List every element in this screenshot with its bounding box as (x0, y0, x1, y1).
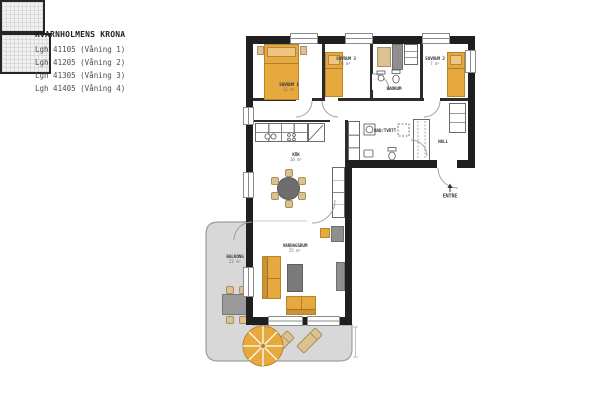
wall (457, 160, 475, 168)
desk (377, 47, 391, 67)
wall (246, 36, 253, 107)
wall (246, 125, 253, 172)
closet (348, 121, 360, 162)
partition-wall (420, 44, 423, 101)
wardrobe (392, 44, 403, 70)
window (307, 316, 340, 326)
window (268, 316, 303, 326)
window (345, 33, 373, 44)
entre-label: ENTRE (420, 194, 480, 200)
partition-wall (338, 98, 424, 101)
bed-single-sovrum3 (325, 52, 343, 97)
wall (246, 198, 253, 267)
kitchen-counter (255, 123, 308, 142)
wall (345, 160, 352, 325)
dining-table (277, 177, 300, 200)
floorplan-page: KVARNHOLMENS KRONA Lgh 41105 (Våning 1) … (0, 0, 600, 400)
nightstand (300, 46, 307, 55)
coffee-table (287, 264, 303, 292)
window (422, 33, 450, 44)
wall (352, 160, 437, 168)
side-table (320, 228, 330, 238)
bathroom (0, 0, 45, 33)
loveseat (286, 296, 316, 315)
partition-wall (440, 98, 468, 101)
window (465, 50, 476, 73)
window (243, 267, 254, 297)
dining-chair (298, 177, 306, 185)
apartment-list-item: Lgh 41205 (Våning 2) (35, 56, 125, 69)
entrance-door-arc (438, 168, 458, 188)
partition-wall (312, 98, 322, 101)
bed-single-sovrum2 (447, 52, 465, 97)
window (243, 172, 254, 198)
hall-wardrobe (413, 119, 430, 161)
dining-chair (298, 192, 306, 200)
sun-lounger (296, 327, 323, 354)
dining-chair (285, 200, 293, 208)
cabinet (404, 44, 418, 65)
tv-bench (336, 262, 345, 291)
nightstand (257, 46, 264, 55)
balcony-chair (226, 286, 234, 294)
window (243, 107, 254, 125)
sun-lounger (268, 330, 295, 357)
entre-arrow-icon (447, 184, 452, 193)
page-title: KVARNHOLMENS KRONA (35, 30, 125, 39)
wall (468, 73, 475, 168)
apartment-list-item: Lgh 41305 (Våning 3) (35, 69, 125, 82)
door-opening (408, 140, 412, 156)
sofa (262, 256, 281, 299)
kitchen-tall-cabinets (332, 167, 345, 218)
wall (340, 317, 352, 325)
wall (246, 317, 268, 325)
partition-wall (370, 44, 373, 101)
dining-chair (271, 192, 279, 200)
title-block: KVARNHOLMENS KRONA Lgh 41105 (Våning 1) … (35, 30, 125, 95)
wall (468, 36, 475, 50)
window (290, 33, 318, 44)
hall-cabinet (449, 103, 466, 133)
wall (318, 36, 345, 44)
partition-wall (253, 120, 330, 123)
apartment-list-item: Lgh 41405 (Våning 4) (35, 82, 125, 95)
dining-chair (285, 169, 293, 177)
sideboard (331, 226, 344, 242)
bed-double (264, 44, 299, 100)
door-opening (372, 74, 376, 90)
apartment-list-item: Lgh 41105 (Våning 1) (35, 43, 125, 56)
balcony-chair (226, 316, 234, 324)
wall (373, 36, 422, 44)
dining-chair (271, 177, 279, 185)
kitchen-corner-cabinet (308, 123, 325, 142)
